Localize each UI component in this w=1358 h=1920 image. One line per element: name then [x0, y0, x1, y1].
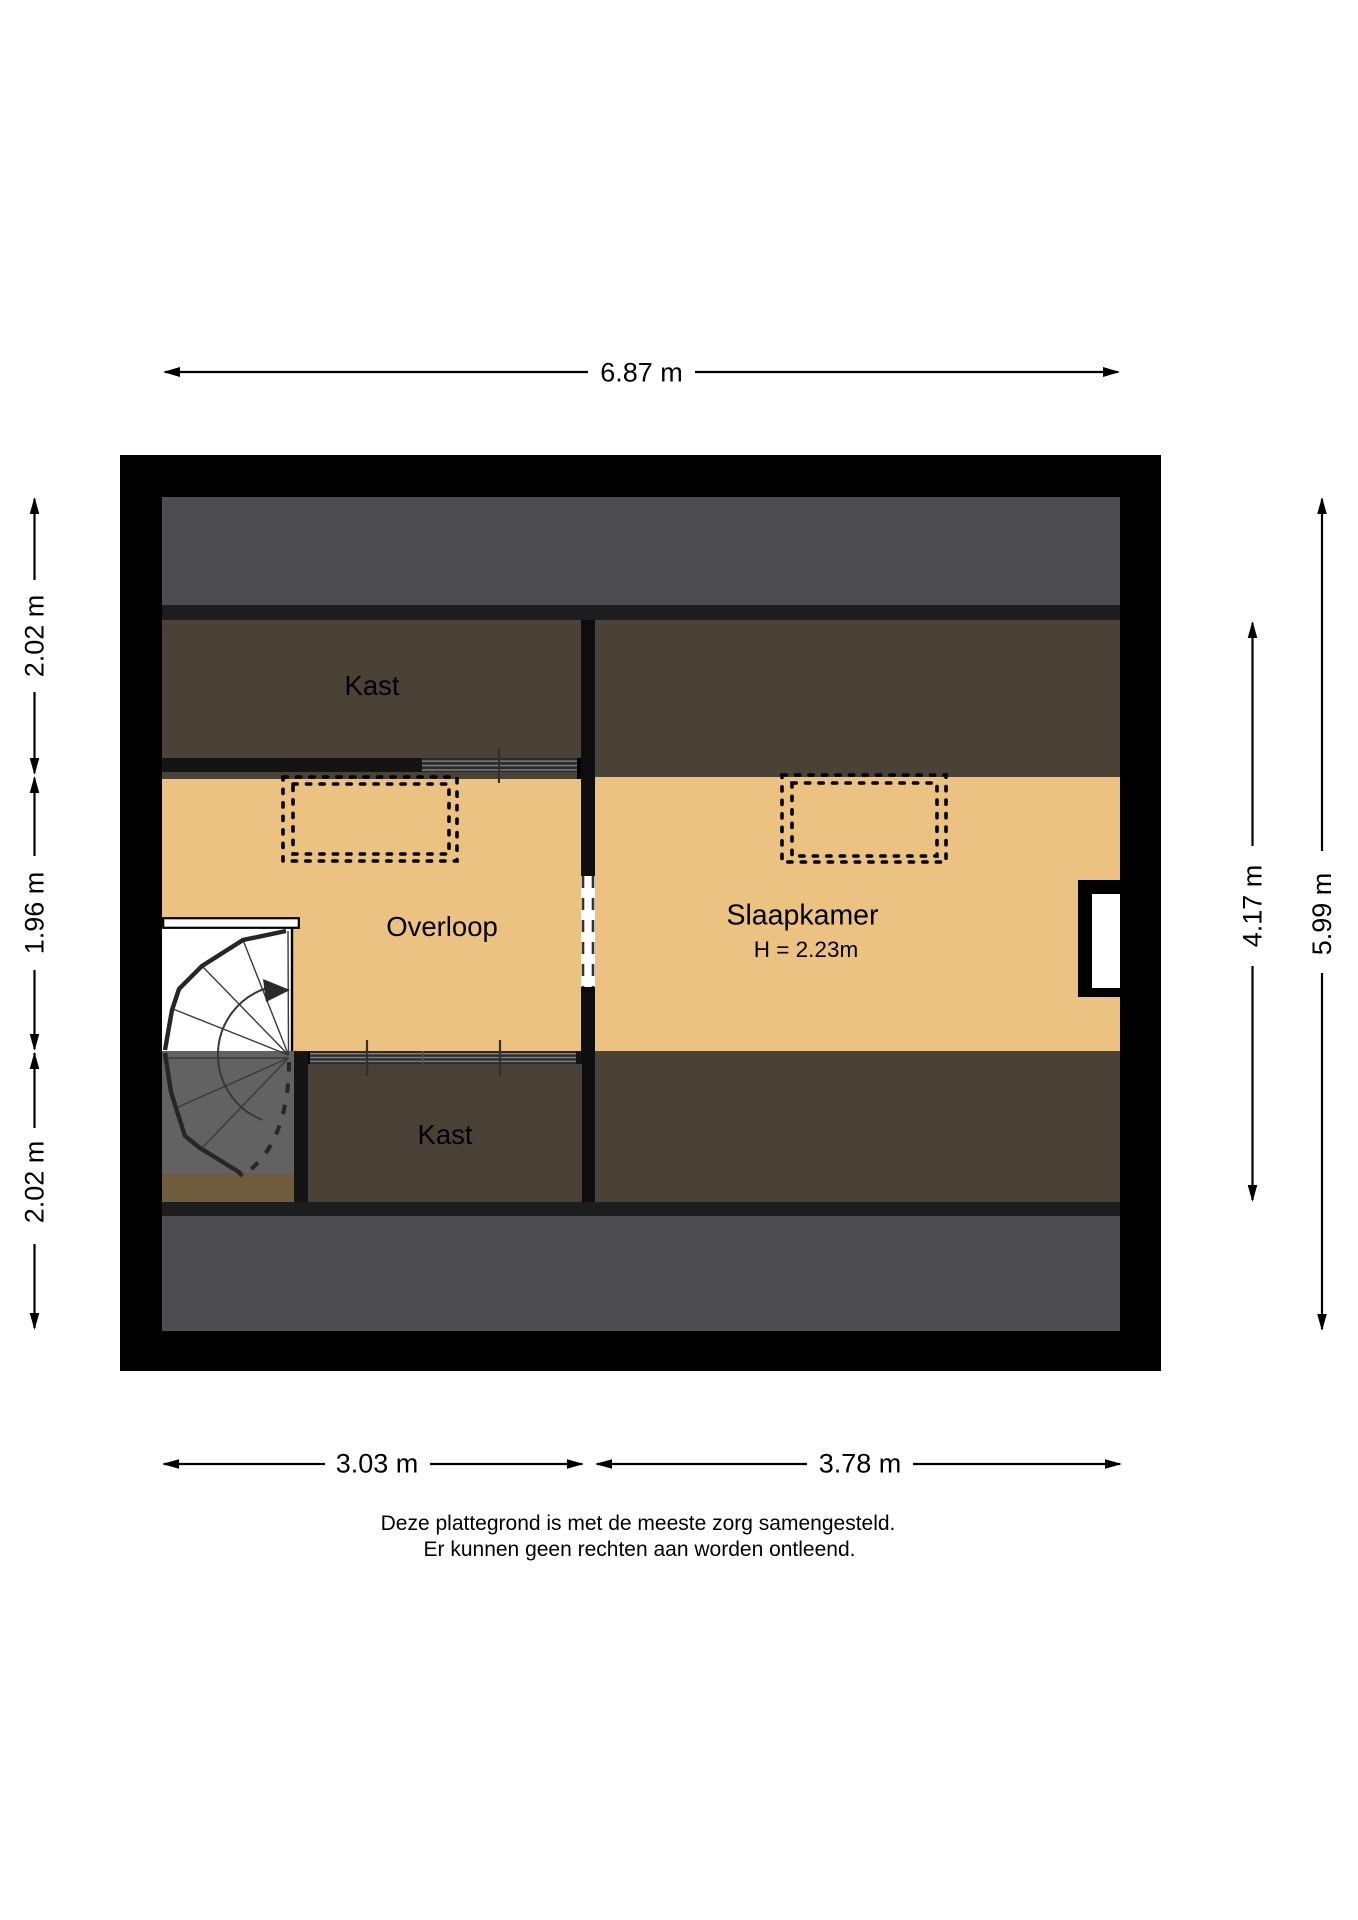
svg-text:3.03 m: 3.03 m: [336, 1449, 419, 1479]
svg-text:5.99 m: 5.99 m: [1307, 873, 1337, 956]
svg-text:4.17 m: 4.17 m: [1238, 865, 1268, 948]
svg-text:Deze plattegrond is met de mee: Deze plattegrond is met de meeste zorg s…: [381, 1512, 896, 1535]
svg-text:3.78 m: 3.78 m: [819, 1449, 902, 1479]
svg-text:Kast: Kast: [417, 1119, 472, 1150]
svg-text:Er kunnen geen rechten aan wor: Er kunnen geen rechten aan worden ontlee…: [424, 1538, 856, 1561]
svg-text:Kast: Kast: [344, 670, 399, 701]
svg-text:2.02 m: 2.02 m: [20, 1141, 50, 1224]
svg-text:Slaapkamer: Slaapkamer: [726, 900, 879, 932]
svg-text:6.87 m: 6.87 m: [600, 358, 683, 388]
svg-text:1.96 m: 1.96 m: [20, 872, 50, 955]
svg-text:H = 2.23m: H = 2.23m: [754, 937, 858, 962]
svg-text:Overloop: Overloop: [386, 911, 498, 942]
svg-text:2.02 m: 2.02 m: [20, 595, 50, 678]
